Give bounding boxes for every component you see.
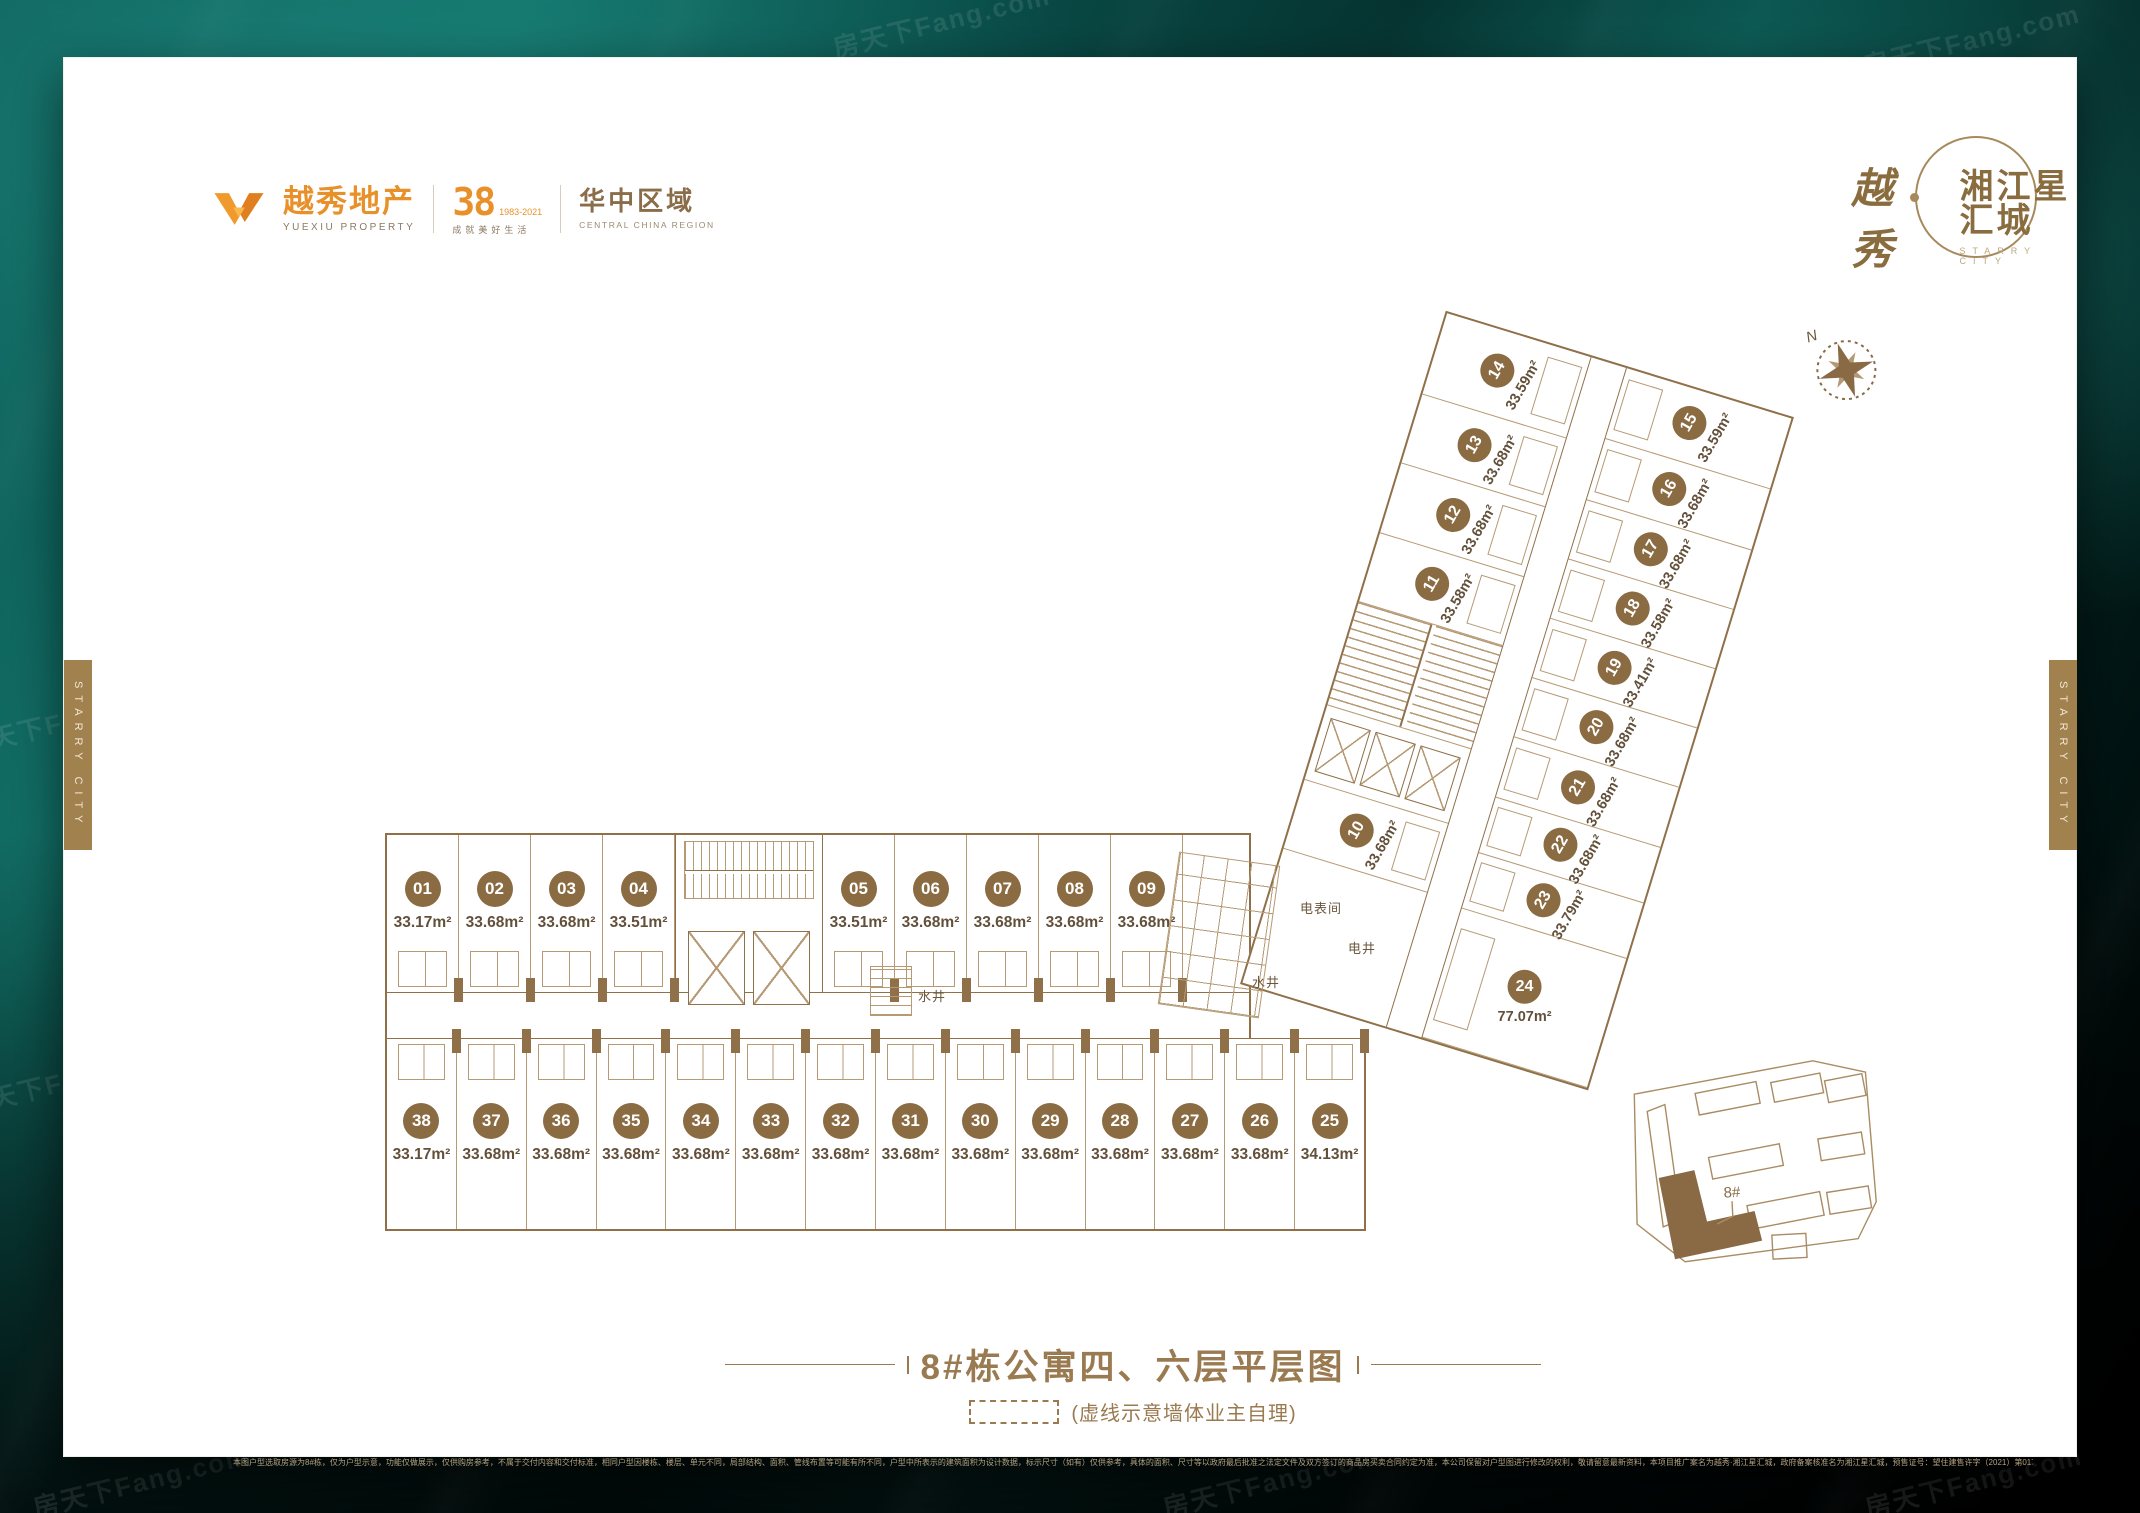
bathroom-outline <box>468 1044 515 1080</box>
unit-number-badge: 32 <box>823 1103 859 1139</box>
elevator-shaft <box>1404 745 1461 811</box>
bathroom-outline <box>538 1044 585 1080</box>
unit-area: 33.68m² <box>602 1146 660 1164</box>
divider <box>433 185 434 233</box>
unit-label: 1233.68m² <box>1425 483 1500 557</box>
bathroom-outline <box>1050 951 1098 987</box>
unit-number-badge: 28 <box>1102 1103 1138 1139</box>
watermark: 房天下Fang.com <box>829 0 1054 65</box>
unit-number-badge: 26 <box>1242 1103 1278 1139</box>
title-rule-left <box>725 1364 895 1366</box>
unit-number-badge: 37 <box>473 1103 509 1139</box>
bathroom-outline <box>1236 1044 1283 1080</box>
unit-cell: 2534.13m² <box>1295 1039 1364 1229</box>
unit-number-badge: 08 <box>1057 871 1093 907</box>
bathroom-outline <box>1594 449 1642 503</box>
unit-cell: 3133.68m² <box>876 1039 946 1229</box>
water-shaft-label-core: 水井 <box>918 986 946 1005</box>
unit-area: 33.68m² <box>1161 1146 1219 1164</box>
unit-area: 33.68m² <box>742 1146 800 1164</box>
bathroom-outline <box>1486 806 1532 856</box>
unit-cell: 2933.68m² <box>1016 1039 1086 1229</box>
bathroom-outline <box>1306 1044 1353 1080</box>
unit-label: 1133.58m² <box>1404 552 1479 626</box>
region-name-cn: 华中区域 <box>579 188 715 214</box>
keyplan-building-label: 8# <box>1723 1184 1741 1202</box>
title-tick-right <box>1357 1356 1359 1374</box>
unit-area: 33.68m² <box>812 1146 870 1164</box>
unit-number-badge: 04 <box>621 871 657 907</box>
unit-cell: 0233.68m² <box>459 835 531 992</box>
unit-area: 33.68m² <box>902 914 960 932</box>
bathroom-outline <box>398 951 446 987</box>
unit-number-badge: 07 <box>985 871 1021 907</box>
unit-number-badge: 03 <box>549 871 585 907</box>
side-tab-left: STARRY CITY <box>64 660 92 850</box>
unit-number-badge: 06 <box>913 871 949 907</box>
unit-area: 33.68m² <box>1118 914 1176 932</box>
meter-room-label: 电表间 <box>1300 898 1342 917</box>
unit-area: 33.17m² <box>394 914 452 932</box>
bathroom-outline <box>1097 1044 1144 1080</box>
unit-area: 33.68m² <box>462 1146 520 1164</box>
unit-cell: 0133.17m² <box>387 835 459 992</box>
bathroom-outline <box>677 1044 724 1080</box>
unit-number-badge: 02 <box>477 871 513 907</box>
unit-cell: 3833.17m² <box>387 1039 457 1229</box>
anniversary-slogan: 成就美好生活 <box>452 226 542 235</box>
project-name-block: 湘江星汇城 STARRY CITY <box>1929 166 2077 266</box>
disclaimer-text: 本图户型选取房源为8#栋，仅为户型示意，功能仅做展示，仅供购房参考，不属于交付内… <box>233 1457 2033 1468</box>
unit-cell: 0333.68m² <box>531 835 603 992</box>
yuexiu-name-en: YUEXIU PROPERTY <box>283 223 415 233</box>
bathroom-outline <box>747 1044 794 1080</box>
bathroom-outline <box>906 951 954 987</box>
staircase <box>684 841 814 899</box>
unit-number-badge: 01 <box>405 871 441 907</box>
elevator-shafts <box>688 931 810 1005</box>
water-shaft-box <box>870 966 912 1016</box>
unit-label: 1333.68m² <box>1446 414 1521 488</box>
electric-shaft-label: 电井 <box>1348 938 1376 957</box>
unit-number-badge: 25 <box>1312 1103 1348 1139</box>
unit-area: 33.51m² <box>610 914 668 932</box>
compass: N <box>1791 309 1904 436</box>
bathroom-outline <box>1027 1044 1074 1080</box>
anniversary-badge: 38 1983-2021 成就美好生活 <box>452 183 542 235</box>
unit-number-badge: 38 <box>403 1103 439 1139</box>
unit-area: 33.68m² <box>1021 1146 1079 1164</box>
unit-area: 34.13m² <box>1301 1146 1359 1164</box>
unit-number-badge: 36 <box>543 1103 579 1139</box>
unit-area: 33.68m² <box>882 1146 940 1164</box>
anniversary-number: 38 <box>452 183 494 221</box>
bathroom-outline <box>614 951 662 987</box>
bathroom-outline <box>398 1044 445 1080</box>
region-lockup: 华中区域 CENTRAL CHINA REGION <box>579 188 715 230</box>
unit-number-badge: 31 <box>892 1103 928 1139</box>
elevator-shaft <box>688 931 745 1005</box>
bathroom-outline <box>608 1044 655 1080</box>
unit-area: 33.68m² <box>538 914 596 932</box>
bathroom-outline <box>817 1044 864 1080</box>
site-key-plan: 8# <box>1613 1051 1896 1273</box>
bathroom-outline <box>1522 688 1569 741</box>
unit-label: 2477.07m² <box>1497 970 1551 1025</box>
unit-cell: 0833.68m² <box>1039 835 1111 992</box>
region-name-en: CENTRAL CHINA REGION <box>579 220 715 230</box>
louver-grille <box>1158 852 1280 1019</box>
unit-area: 33.17m² <box>393 1146 451 1164</box>
unit-label: 1433.59m² <box>1469 338 1544 412</box>
yuexiu-name-cn: 越秀地产 <box>283 186 415 217</box>
unit-cell: 3633.68m² <box>527 1039 597 1229</box>
bathroom-outline <box>978 951 1026 987</box>
project-logo: 越秀 湘江星汇城 STARRY CITY <box>1851 155 2077 277</box>
plan-title: 8#栋公寓四、六层平层图 <box>921 1339 1346 1390</box>
side-tab-right-text: STARRY CITY <box>2057 681 2069 830</box>
yuexiu-calligraphy: 越秀 <box>1851 155 1909 277</box>
bathroom-outline <box>1503 747 1550 800</box>
unit-number-badge: 30 <box>962 1103 998 1139</box>
yuexiu-logo-icon <box>213 184 265 234</box>
unit-number-badge: 35 <box>613 1103 649 1139</box>
plan-note-row: (虚线示意墙体业主自理) <box>63 1397 2140 1426</box>
unit-area: 33.68m² <box>1091 1146 1149 1164</box>
unit-number-badge: 33 <box>753 1103 789 1139</box>
corridor <box>385 990 1251 1038</box>
bathroom-outline <box>957 1044 1004 1080</box>
units-bottom-row: 3833.17m²3733.68m²3633.68m²3533.68m²3433… <box>385 1038 1366 1231</box>
unit-cell: 0733.68m² <box>967 835 1039 992</box>
unit-area: 33.68m² <box>1046 914 1104 932</box>
unit-label: 1533.59m² <box>1661 391 1736 465</box>
unit-number-badge: 09 <box>1129 871 1165 907</box>
unit-number-badge: 24 <box>1507 970 1541 1004</box>
bathroom-outline <box>542 951 590 987</box>
unit-cell: 3433.68m² <box>666 1039 736 1229</box>
stair-elevator-core <box>675 835 823 992</box>
unit-area: 33.68m² <box>1231 1146 1289 1164</box>
unit-label: 1033.68m² <box>1328 799 1403 873</box>
unit-area: 77.07m² <box>1497 1009 1551 1025</box>
project-name-en: STARRY CITY <box>1959 246 2077 266</box>
unit-number-badge: 29 <box>1032 1103 1068 1139</box>
unit-area: 33.68m² <box>532 1146 590 1164</box>
anniversary-years: 1983-2021 <box>499 208 542 217</box>
bathroom-outline <box>887 1044 934 1080</box>
dashed-wall-legend-icon <box>969 1400 1059 1424</box>
units-top-row: 0133.17m²0233.68m²0333.68m²0433.51m²0533… <box>385 833 1251 993</box>
bathroom-outline <box>1469 862 1515 912</box>
unit-number-badge: 27 <box>1172 1103 1208 1139</box>
unit-cell: 3533.68m² <box>597 1039 667 1229</box>
side-tab-right: STARRY CITY <box>2049 660 2077 850</box>
bathroom-outline <box>1613 379 1663 440</box>
unit-cell: 2733.68m² <box>1155 1039 1225 1229</box>
unit-area: 33.68m² <box>951 1146 1009 1164</box>
unit-number-badge: 34 <box>683 1103 719 1139</box>
divider <box>560 185 561 233</box>
project-name-cn: 湘江星汇城 <box>1959 170 2077 238</box>
unit-cell: 3333.68m² <box>736 1039 806 1229</box>
title-tick-left <box>907 1356 909 1374</box>
bathroom-outline <box>1576 510 1623 563</box>
elevator-shaft <box>753 931 810 1005</box>
bathroom-outline <box>1540 629 1587 682</box>
poster-stage: 房天下Fang.com房天下Fang.com房天下Fang.com房天下Fang… <box>0 0 2140 1513</box>
title-rule-right <box>1371 1364 1541 1366</box>
unit-cell: 2633.68m² <box>1225 1039 1295 1229</box>
unit-cell: 0433.51m² <box>603 835 675 992</box>
brand-lockup: 越秀地产 YUEXIU PROPERTY 38 1983-2021 成就美好生活… <box>213 183 715 235</box>
unit-area: 33.68m² <box>672 1146 730 1164</box>
bathroom-outline <box>1166 1044 1213 1080</box>
plan-title-row: 8#栋公寓四、六层平层图 <box>63 1339 2140 1390</box>
side-tab-left-text: STARRY CITY <box>72 681 84 830</box>
unit-area: 33.68m² <box>466 914 524 932</box>
unit-area: 33.51m² <box>830 914 888 932</box>
unit-area: 33.68m² <box>974 914 1032 932</box>
water-shaft-label-junction: 水井 <box>1252 972 1280 991</box>
bathroom-outline <box>470 951 518 987</box>
unit-cell: 3733.68m² <box>457 1039 527 1229</box>
bathroom-outline <box>1558 569 1605 622</box>
plan-note: (虚线示意墙体业主自理) <box>1071 1397 1296 1426</box>
unit-number-badge: 05 <box>841 871 877 907</box>
unit-cell: 3033.68m² <box>946 1039 1016 1229</box>
unit-cell: 3233.68m² <box>806 1039 876 1229</box>
unit-cell: 2833.68m² <box>1086 1039 1156 1229</box>
